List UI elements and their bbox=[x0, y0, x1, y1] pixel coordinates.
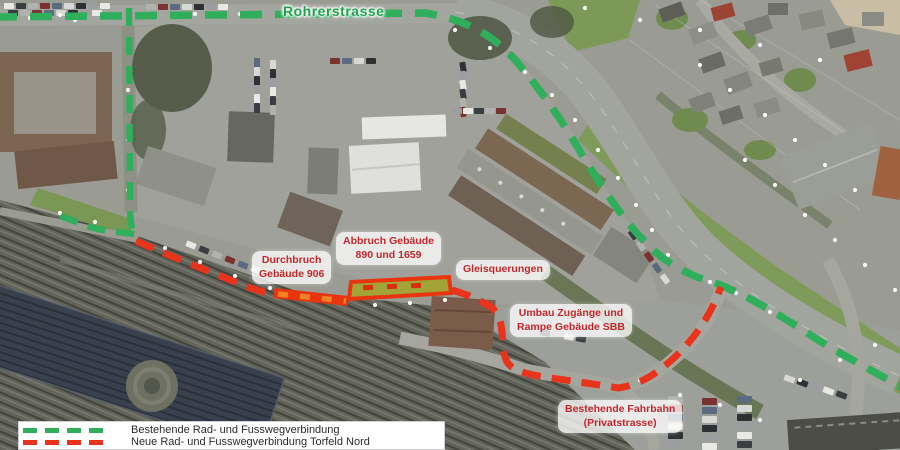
callout-gleisquerungen-line1: Gleisquerungen bbox=[463, 263, 543, 277]
callout-umbau: Umbau Zugänge und Rampe Gebäude SBB bbox=[510, 304, 632, 337]
building-white-shed bbox=[362, 115, 447, 140]
aerial-map-graphic bbox=[0, 0, 900, 450]
callout-abbruch-line1: Abbruch Gebäude bbox=[343, 235, 434, 249]
legend-label-new: Neue Rad- und Fusswegverbindung Torfeld … bbox=[131, 436, 370, 448]
building bbox=[227, 111, 275, 163]
trees bbox=[132, 24, 212, 112]
legend-label-existing: Bestehende Rad- und Fusswegverbindung bbox=[131, 424, 340, 436]
aerial-map: Rohrerstrasse Durchbruch Gebäude 906 Abb… bbox=[0, 0, 900, 450]
legend-swatch-green bbox=[23, 428, 109, 433]
building-white-hall bbox=[349, 142, 421, 194]
building-topleft-complex bbox=[0, 52, 118, 189]
callout-abbruch-line2: 890 und 1659 bbox=[343, 249, 434, 263]
callout-umbau-line1: Umbau Zugänge und bbox=[517, 307, 625, 321]
callout-fahrbahn: Bestehende Fahrbahn (Privatstrasse) bbox=[558, 400, 682, 433]
callout-fahrbahn-line1: Bestehende Fahrbahn bbox=[565, 403, 675, 417]
legend: Bestehende Rad- und Fusswegverbindung Ne… bbox=[18, 421, 445, 450]
callout-durchbruch: Durchbruch Gebäude 906 bbox=[252, 251, 331, 284]
callout-durchbruch-line2: Gebäude 906 bbox=[259, 268, 324, 282]
legend-row-new: Neue Rad- und Fusswegverbindung Torfeld … bbox=[23, 436, 444, 448]
road-label-rohrerstrasse: Rohrerstrasse bbox=[283, 3, 384, 19]
legend-swatch-red bbox=[23, 440, 109, 445]
callout-gleisquerungen: Gleisquerungen bbox=[456, 260, 550, 280]
building-highlight-abbruch bbox=[349, 277, 451, 299]
callout-fahrbahn-line2: (Privatstrasse) bbox=[565, 417, 675, 431]
callout-durchbruch-line1: Durchbruch bbox=[259, 254, 324, 268]
legend-row-existing: Bestehende Rad- und Fusswegverbindung bbox=[23, 424, 444, 436]
callout-abbruch: Abbruch Gebäude 890 und 1659 bbox=[336, 232, 441, 265]
callout-umbau-line2: Rampe Gebäude SBB bbox=[517, 321, 625, 335]
